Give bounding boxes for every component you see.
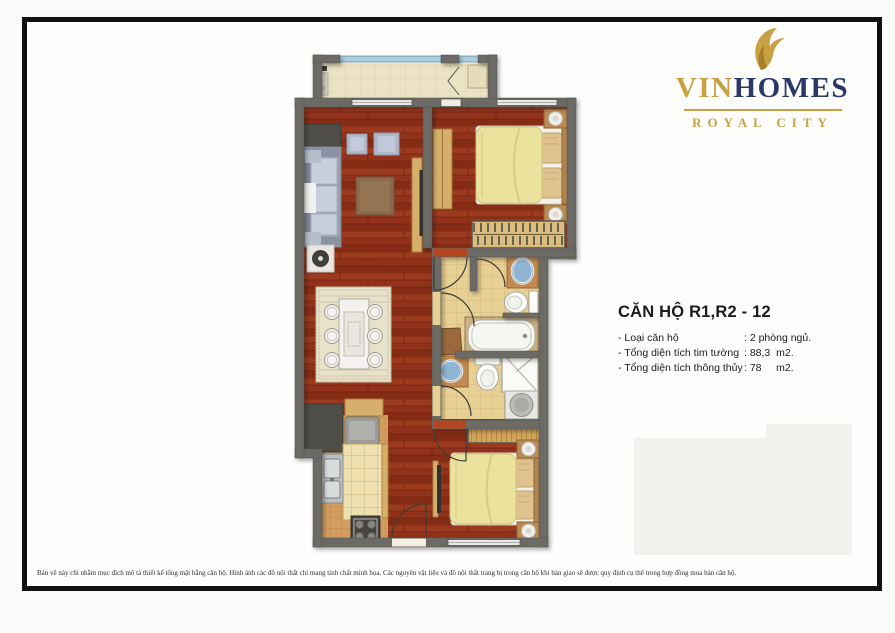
shower [502,353,538,392]
apartment-title: CĂN HỘ R1,R2 - 12 [618,303,890,322]
counter-edge [382,444,388,518]
info-label: - Tổng diện tích thông thủy [618,361,744,376]
door-opening [433,386,441,416]
info-row: - Tổng diện tích tim tường : 88,3 m2. [618,346,890,361]
door-opening [434,421,466,429]
toilet [505,291,539,314]
floor-plan [280,40,610,570]
info-value: : 88,3 m2. [744,346,794,361]
dining-area [316,287,391,382]
balcony-glass-rail [322,56,488,62]
watermark-box [634,438,852,555]
pouf-top [350,137,364,151]
info-value: : 2 phòng ngủ. [744,331,811,346]
nightstand [544,109,567,128]
info-row: - Tổng diện tích thông thủy : 78 m2. [618,361,890,376]
utility-shaft [300,124,341,147]
tv-icon [437,465,441,513]
kitchen-sink [321,454,343,503]
nightstand [517,440,540,458]
balcony-floor [322,63,488,100]
brand-name-homes: HOMES [734,72,849,104]
info-label: - Loại căn hộ [618,331,744,346]
brand-rule [684,109,842,111]
washer-drain [505,391,538,419]
brand-bird-icon [737,28,789,72]
brand-logo: VINHOMES ROYAL CITY [655,28,870,129]
bedroom-2-bed [450,452,540,526]
entry-door-opening [392,539,426,547]
brand-name-vin: VIN [676,72,734,104]
apartment-info: CĂN HỘ R1,R2 - 12 - Loại căn hộ : 2 phòn… [618,303,890,377]
door-opening [434,249,467,257]
brand-subtitle: ROYAL CITY [655,116,870,129]
bathroom-sink [507,254,538,288]
info-label: - Tổng diện tích tim tường [618,346,744,361]
door-opening [433,292,441,325]
kitchen-counter [343,444,382,520]
bedroom-1-bed [476,126,568,204]
pouf-top [378,136,395,152]
sofa [303,147,341,247]
disclaimer-text: Bản vẽ này chỉ nhằm mục đích mô tả thiết… [37,569,857,577]
brand-name: VINHOMES [655,74,870,103]
info-row: - Loại căn hộ : 2 phòng ngủ. [618,331,890,346]
balcony-spot [322,66,327,71]
nightstand [517,522,540,540]
kitchen-cabinet [345,399,383,416]
bathtub [465,317,538,355]
balcony-bench [468,65,487,88]
toilet [475,356,500,390]
coffee-table-top [360,181,390,211]
balcony-door-opening [441,99,461,107]
wardrobe-rail [472,221,565,248]
floor-speaker [307,245,334,272]
tv-icon [420,170,424,236]
info-value: : 78 m2. [744,361,794,376]
